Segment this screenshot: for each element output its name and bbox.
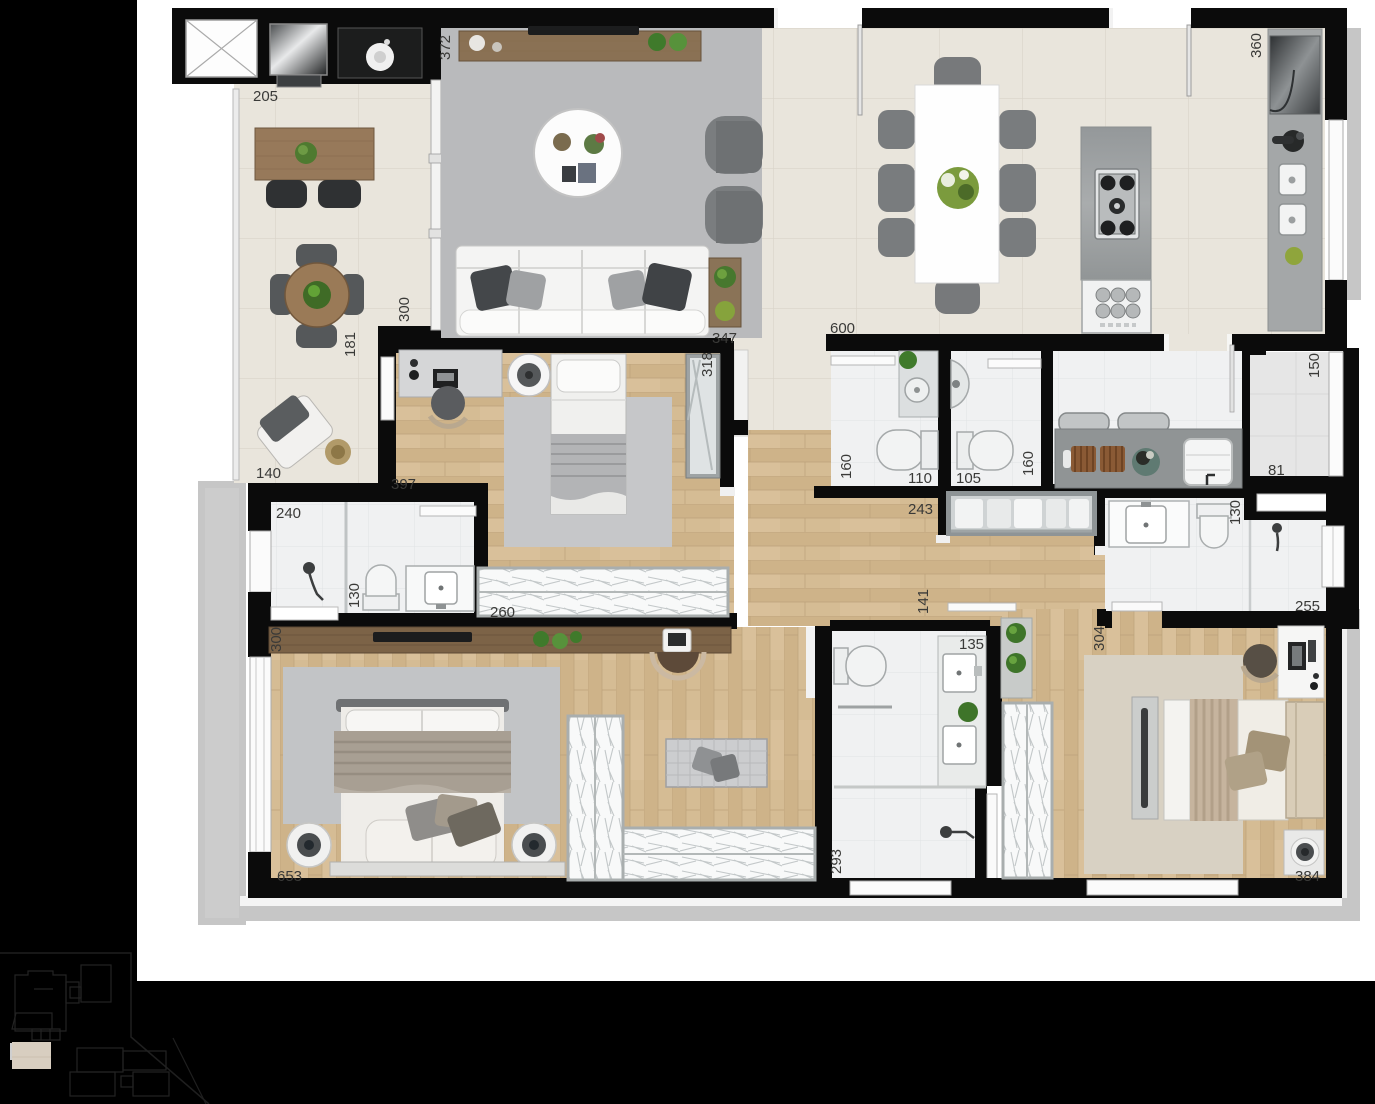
svg-text:372: 372 (437, 35, 454, 60)
svg-text:135: 135 (959, 636, 984, 653)
svg-text:141: 141 (915, 589, 932, 614)
svg-text:150: 150 (1306, 353, 1323, 378)
svg-text:397: 397 (391, 476, 416, 493)
svg-text:160: 160 (838, 454, 855, 479)
svg-text:653: 653 (277, 868, 302, 885)
svg-text:347: 347 (712, 330, 737, 347)
svg-text:81: 81 (1268, 462, 1285, 479)
svg-text:255: 255 (1295, 598, 1320, 615)
svg-text:318: 318 (699, 352, 716, 377)
svg-text:140: 140 (256, 465, 281, 482)
svg-text:360: 360 (1248, 33, 1265, 58)
svg-text:300: 300 (268, 627, 285, 652)
svg-text:243: 243 (908, 501, 933, 518)
svg-text:304: 304 (1091, 626, 1108, 651)
svg-text:300: 300 (396, 297, 413, 322)
svg-text:260: 260 (490, 604, 515, 621)
svg-text:181: 181 (342, 332, 359, 357)
svg-text:384: 384 (1295, 868, 1320, 885)
svg-text:293: 293 (828, 849, 845, 874)
svg-text:105: 105 (956, 470, 981, 487)
svg-text:600: 600 (830, 320, 855, 337)
svg-text:130: 130 (346, 583, 363, 608)
svg-text:160: 160 (1020, 451, 1037, 476)
svg-text:240: 240 (276, 505, 301, 522)
svg-text:130: 130 (1227, 500, 1244, 525)
svg-text:205: 205 (253, 88, 278, 105)
svg-text:110: 110 (908, 470, 932, 487)
